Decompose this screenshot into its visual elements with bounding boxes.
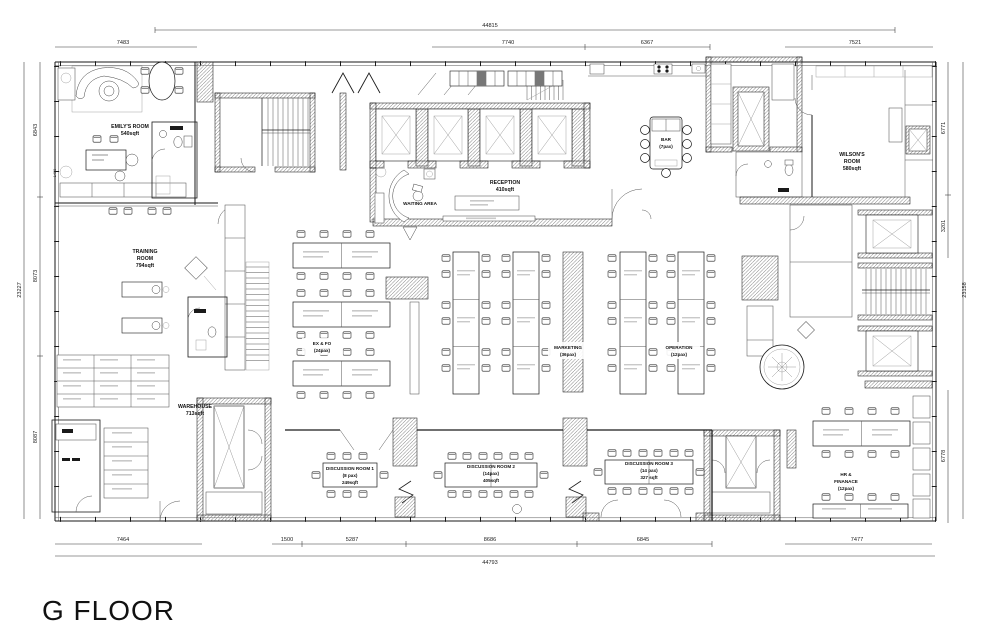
room-label-hr-1: HR &	[840, 472, 852, 477]
plant-icon	[60, 166, 72, 178]
reception-desk	[389, 170, 423, 222]
room-cap-marketing: (36pax)	[560, 352, 577, 357]
round-planter	[760, 345, 804, 389]
room-label-hr-2: FINANACE	[834, 479, 858, 484]
stair-core-topleft	[197, 62, 346, 172]
training-stair	[246, 262, 269, 370]
lift-shaft-icon	[532, 109, 572, 161]
room-label-bar: BAR	[661, 137, 672, 142]
room-area-dr2: 405sqft	[483, 478, 500, 483]
room-cap-bar: (7pax)	[659, 144, 673, 149]
room-area-dr3: 327 sqft	[640, 475, 658, 480]
discussion-room-1: DISCUSSION ROOM 1 (8 pax) 249sqft	[312, 453, 388, 497]
reception-area: WAITING AREA RECEPTION 410sqft	[370, 167, 651, 240]
hr-finance-area: HR & FINANACE (12pax)	[787, 396, 930, 518]
north-pointer-icon	[403, 227, 417, 240]
room-area-warehouse: 713sqft	[186, 411, 204, 417]
dim-left-2: 8073	[33, 270, 39, 282]
dim-top-2: 7740	[502, 40, 514, 46]
warehouse-lift-core	[197, 398, 271, 521]
dimension-right: 6771 3201 6778 23158	[941, 62, 968, 523]
tv-icon	[170, 126, 183, 130]
room-cap-hr: (12pax)	[838, 486, 855, 491]
locker-strip	[508, 71, 562, 86]
dim-bot-3: 5287	[346, 537, 358, 543]
room-label-training-2: ROOM	[137, 256, 153, 262]
lift-shaft-icon	[376, 109, 416, 161]
room-area-training: 794sqft	[136, 263, 154, 269]
discussion-room-3: DISCUSSION ROOM 3 (14 pax) 327 sqft	[594, 450, 704, 494]
lift-shaft-icon	[428, 109, 468, 161]
room-label-exfo: EX & FO	[313, 341, 332, 346]
room-cap-exfo: (24pax)	[314, 348, 331, 353]
room-label-operation: OPERATION	[666, 345, 694, 350]
room-warehouse: WAREHOUSE 713sqft	[52, 355, 213, 521]
lift-shaft-icon	[480, 109, 520, 161]
marketing-desks	[442, 252, 550, 394]
dim-bot-2: 1500	[281, 537, 293, 543]
right-side-cores	[790, 205, 932, 388]
room-label-reception: RECEPTION	[490, 180, 521, 186]
room-area-wilson: 580sqft	[843, 166, 861, 172]
planter-wall	[563, 252, 583, 392]
operation-desks	[608, 252, 715, 394]
locker-strip	[450, 71, 504, 86]
dim-left-3: 8087	[33, 431, 39, 443]
page-title: G FLOOR	[42, 595, 175, 626]
room-area-emily: 540sqft	[121, 131, 139, 137]
dim-right-3: 6778	[941, 450, 947, 462]
lift-bank	[370, 103, 590, 168]
dimension-top: 44815 7483 7740 6367 7521	[55, 23, 933, 50]
room-label-dr2: DISCUSSION ROOM 2	[467, 464, 515, 469]
dim-left-overall: 23227	[17, 282, 23, 298]
diamond-planter	[798, 322, 815, 339]
dim-bot-5: 6845	[637, 537, 649, 543]
open-office: EX & FO (24pax) MARKETING (36pax) OPERAT…	[293, 231, 814, 398]
dim-top-4: 7521	[849, 40, 861, 46]
discussion-room-2: DISCUSSION ROOM 2 (14pax) 405sqft	[434, 453, 548, 497]
plant-icon	[376, 167, 386, 177]
dim-right-2: 3201	[941, 220, 947, 232]
sink-icon	[692, 64, 705, 73]
room-area-dr1: 249sqft	[342, 480, 359, 485]
room-label-emily: EMILY'S ROOM	[111, 124, 149, 130]
core-topright	[706, 57, 802, 197]
warehouse-office	[52, 420, 100, 512]
room-label-training-1: TRAINING	[132, 249, 157, 255]
dim-left-1: 6843	[33, 124, 39, 136]
room-cap-dr1: (8 pax)	[343, 473, 358, 478]
bottomright-lift-core	[704, 430, 780, 521]
floor-plan-page: 44815 7483 7740 6367 7521 7464 1500 5287…	[0, 0, 1000, 643]
room-label-warehouse: WAREHOUSE	[178, 404, 213, 410]
stove-icon	[654, 64, 672, 74]
dim-top-3: 6367	[641, 40, 653, 46]
room-area-reception: 410sqft	[496, 187, 514, 193]
dim-top-1: 7483	[117, 40, 129, 46]
massage-bed	[122, 282, 169, 297]
dim-bot-4: 8686	[484, 537, 496, 543]
room-label-dr3: DISCUSSION ROOM 3	[625, 461, 673, 466]
dim-bot-6: 7477	[851, 537, 863, 543]
room-cap-dr3: (14 pax)	[640, 468, 658, 473]
room-label-marketing: MARKETING	[554, 345, 582, 350]
room-cap-operation: (12pax)	[671, 352, 688, 357]
dim-bot-1: 7464	[117, 537, 129, 543]
exfo-desks	[293, 231, 390, 398]
planter-box	[742, 256, 778, 300]
massage-bed	[122, 318, 169, 333]
room-label-dr1: DISCUSSION ROOM 1	[326, 466, 374, 471]
dim-top-overall: 44815	[482, 23, 498, 29]
room-label-wilson-2: ROOM	[844, 159, 860, 165]
floor-plan-canvas: 44815 7483 7740 6367 7521 7464 1500 5287…	[0, 0, 1000, 643]
dim-interior-emily: 1400	[53, 169, 57, 177]
training-screen	[185, 257, 208, 280]
training-bathroom	[188, 297, 227, 357]
room-training: TRAINING ROOM 794sqft	[109, 205, 269, 370]
room-cap-dr2: (14pax)	[483, 471, 500, 476]
dimension-left: 6843 8073 8087 23227	[17, 62, 43, 519]
room-label-wilson-1: WILSON'S	[839, 152, 865, 158]
dim-bottom-overall: 44793	[482, 560, 498, 566]
room-label-waiting: WAITING AREA	[403, 201, 437, 206]
discussion-rooms: DISCUSSION ROOM 1 (8 pax) 249sqft DISCUS…	[285, 418, 712, 521]
dim-right-overall: 23158	[962, 282, 968, 298]
bar-area: BAR (7pax)	[641, 117, 692, 178]
dimension-bottom: 7464 1500 5287 8686 6845 7477 44793	[55, 537, 935, 566]
dim-right-1: 6771	[941, 122, 947, 134]
pantry-corridor	[332, 64, 710, 95]
